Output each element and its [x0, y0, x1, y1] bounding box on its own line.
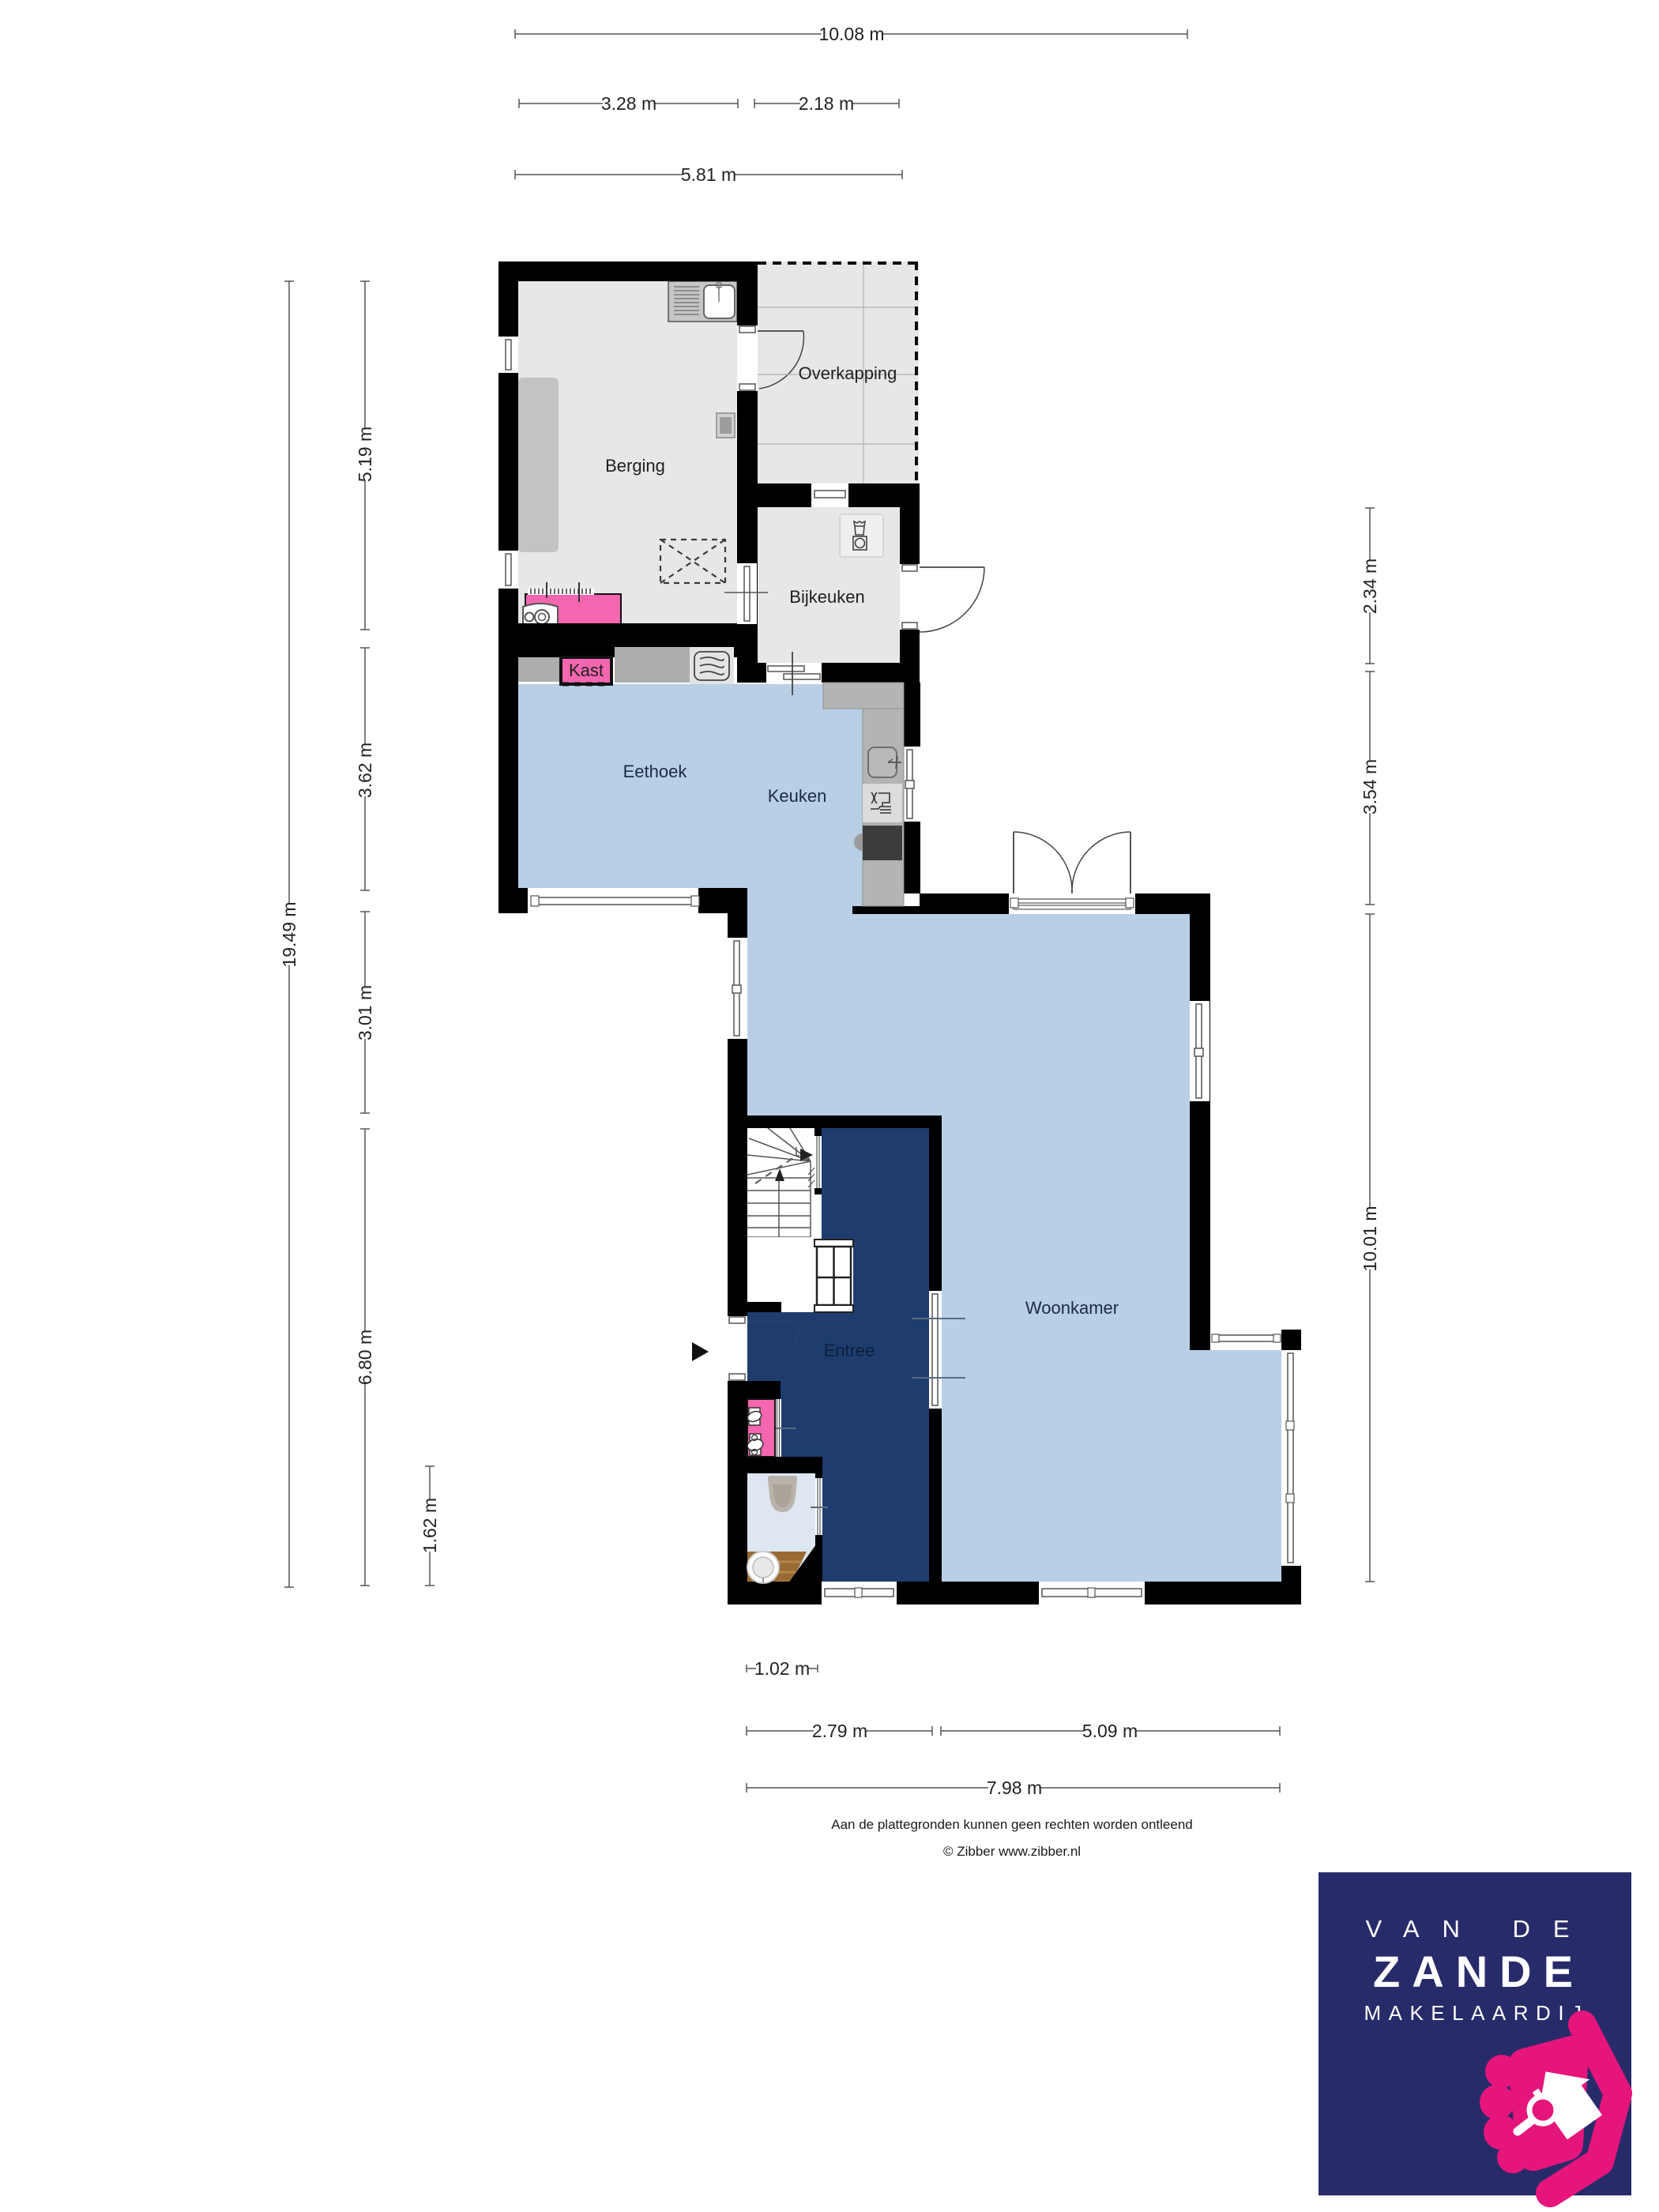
svg-text:Overkapping: Overkapping [799, 363, 897, 383]
svg-text:Entree: Entree [824, 1341, 875, 1360]
svg-text:3.54 m: 3.54 m [1360, 759, 1380, 814]
svg-text:Bijkeuken: Bijkeuken [789, 587, 864, 607]
svg-text:3.01 m: 3.01 m [355, 985, 375, 1040]
svg-text:5.09 m: 5.09 m [1082, 1721, 1138, 1741]
svg-text:© Zibber www.zibber.nl: © Zibber www.zibber.nl [943, 1844, 1081, 1859]
svg-text:VAN DE: VAN DE [1365, 1915, 1592, 1943]
svg-text:Berging: Berging [605, 456, 665, 476]
svg-text:7.98 m: 7.98 m [987, 1777, 1042, 1798]
svg-text:6.80 m: 6.80 m [355, 1330, 375, 1385]
svg-text:1.02 m: 1.02 m [754, 1658, 810, 1679]
svg-text:2.18 m: 2.18 m [799, 93, 854, 114]
svg-text:2.34 m: 2.34 m [1360, 559, 1380, 614]
svg-text:3.62 m: 3.62 m [355, 743, 375, 798]
svg-text:Keuken: Keuken [768, 786, 827, 806]
svg-text:3.28 m: 3.28 m [601, 93, 656, 114]
svg-text:5.19 m: 5.19 m [355, 427, 375, 482]
svg-text:MAKELAARDIJ: MAKELAARDIJ [1364, 2001, 1589, 2025]
svg-text:19.49 m: 19.49 m [279, 901, 299, 967]
svg-text:Aan de plattegronden kunnen ge: Aan de plattegronden kunnen geen rechten… [831, 1817, 1192, 1832]
svg-text:10.08 m: 10.08 m [818, 24, 884, 44]
svg-text:Eethoek: Eethoek [623, 762, 688, 781]
svg-text:Woonkamer: Woonkamer [1025, 1298, 1119, 1318]
svg-text:1.62 m: 1.62 m [419, 1498, 440, 1553]
svg-text:10.01 m: 10.01 m [1360, 1206, 1380, 1271]
svg-text:ZANDE: ZANDE [1373, 1947, 1585, 1996]
svg-text:Kast: Kast [569, 660, 604, 680]
svg-text:5.81 m: 5.81 m [681, 164, 736, 185]
svg-text:2.79 m: 2.79 m [812, 1721, 867, 1741]
